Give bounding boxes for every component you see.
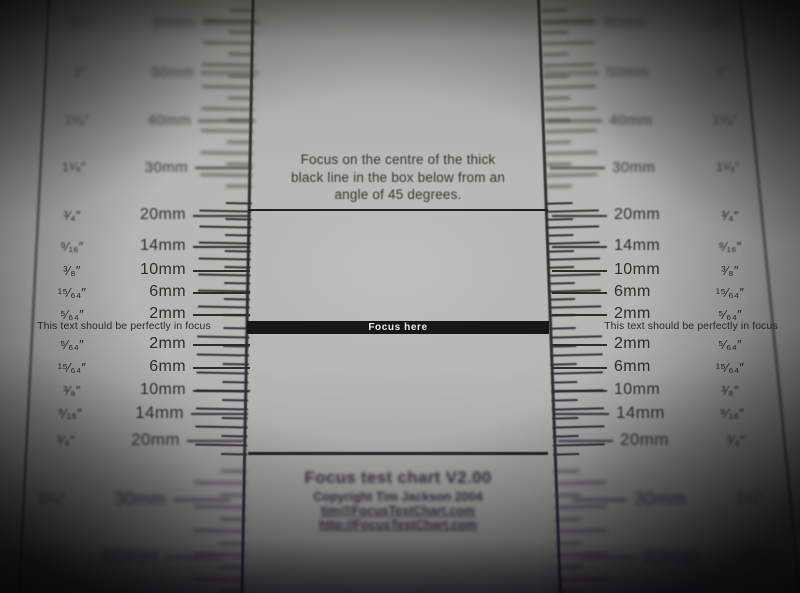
ruler-row-6mm: ¹⁵⁄₆₄″6mm — [30, 356, 250, 378]
ruler-mm-label: 14mm — [112, 403, 184, 423]
focus-test-chart-photo: 2³⁄₈″60mm2″50mm1⁵⁄₈″40mm1¹⁄₈″30mm³⁄₄″20m… — [0, 0, 800, 593]
footer-title: Focus test chart V2.00 — [247, 468, 549, 488]
ruler-row-20mm: ³⁄₄″20mm — [30, 204, 250, 226]
ruler-mm-label: 10mm — [614, 381, 686, 399]
focus-box-bottom-border — [248, 452, 548, 455]
ruler-mm-label: 14mm — [616, 403, 688, 423]
ruler-row-6mm: 6mm¹⁵⁄₆₄″ — [552, 281, 774, 303]
ruler-major-dash — [547, 109, 609, 131]
ruler-inch-label: ³⁄₄″ — [692, 433, 780, 448]
ruler-row-30mm: 1¹⁄₈″30mm — [10, 488, 230, 510]
ruler-inch-label: 1⁵⁄₈″ — [714, 548, 800, 566]
ruler-major-dash — [186, 333, 250, 355]
footer-url: http://FocusTestChart.com — [247, 518, 549, 532]
ruler-mm-label: 10mm — [114, 381, 186, 399]
ruler-major-dash — [544, 61, 606, 83]
ruler-mm-label: 20mm — [108, 430, 180, 450]
ruler-inch-label: 2″ — [678, 65, 766, 79]
ruler-mm-label: 40mm — [119, 112, 191, 129]
ruler-mm-label: 40mm — [86, 546, 158, 569]
ruler-mm-label: 2mm — [114, 335, 186, 353]
footer-copyright: Copyright Tim Jackson 2004 — [247, 490, 549, 504]
ruler-mm-label: 30mm — [116, 159, 188, 176]
ruler-inch-label: 1⁵⁄₈″ — [681, 113, 769, 127]
ruler-row-60mm: 60mm2³⁄₈″ — [542, 11, 764, 33]
ruler-mm-label: 6mm — [614, 283, 686, 301]
ruler-major-dash — [184, 402, 248, 424]
ruler-major-dash — [191, 109, 255, 131]
ruler-inch-label: ⁹⁄₁₆″ — [28, 406, 112, 421]
ruler-inch-label: ³⁄₈″ — [686, 383, 774, 398]
ruler-row-6mm: 6mm¹⁵⁄₆₄″ — [552, 356, 774, 378]
ruler-mm-label: 10mm — [114, 261, 186, 279]
ruler-mm-label: 60mm — [604, 14, 676, 31]
ruler-inch-label: ¹⁵⁄₆₄″ — [686, 360, 774, 375]
ruler-inch-label: 1¹⁄₈″ — [32, 160, 116, 174]
ruler-inch-label: ¹⁵⁄₆₄″ — [30, 285, 114, 300]
ruler-row-10mm: 10mm³⁄₈″ — [552, 259, 774, 281]
ruler-row-20mm: 20mm³⁄₄″ — [558, 429, 780, 451]
ruler-inch-label: 2³⁄₈″ — [676, 15, 764, 29]
ruler-major-dash — [186, 259, 250, 281]
ruler-mm-label: 6mm — [114, 358, 186, 376]
ruler-inch-label: ⁹⁄₁₆″ — [688, 406, 776, 421]
ruler-major-dash — [572, 488, 634, 510]
ruler-mm-label: 10mm — [614, 261, 686, 279]
ruler-mm-label: 30mm — [94, 489, 166, 510]
ruler-row-40mm: 1⁵⁄₈″40mm — [35, 109, 255, 131]
ruler-mm-label: 30mm — [634, 489, 706, 510]
ruler-inch-label: 1⁵⁄₈″ — [35, 113, 119, 127]
ruler-major-dash — [580, 546, 642, 568]
ruler-inch-label: ⁹⁄₁₆″ — [30, 239, 114, 254]
instruction-line-3: angle of 45 degrees. — [247, 186, 549, 204]
ruler-row-20mm: 20mm³⁄₄″ — [552, 204, 774, 226]
ruler-row-10mm: ³⁄₈″10mm — [30, 259, 250, 281]
ruler-row-30mm: 30mm1¹⁄₈″ — [550, 156, 772, 178]
ruler-mm-label: 6mm — [614, 358, 686, 376]
ruler-major-dash — [552, 204, 614, 226]
ruler-major-dash — [180, 429, 244, 451]
ruler-major-dash — [186, 281, 250, 303]
ruler-major-dash — [552, 235, 614, 257]
ruler-mm-label: 14mm — [614, 237, 686, 255]
right-focus-note: This text should be perfectly in focus — [584, 320, 798, 332]
ruler-mm-label: 40mm — [642, 546, 714, 569]
ruler-row-14mm: ⁹⁄₁₆″14mm — [28, 402, 248, 424]
ruler-major-dash — [186, 356, 250, 378]
ruler-inch-label: 1¹⁄₈″ — [706, 491, 794, 507]
instruction-text: Focus on the centre of the thick black l… — [247, 151, 549, 204]
ruler-major-dash — [552, 259, 614, 281]
ruler-inch-label: ³⁄₈″ — [686, 263, 774, 278]
ruler-major-dash — [558, 429, 620, 451]
focus-band: Focus here — [247, 321, 549, 334]
instruction-line-1: Focus on the centre of the thick — [247, 151, 549, 169]
ruler-major-dash — [552, 333, 614, 355]
focus-box-top-border — [248, 209, 548, 211]
ruler-major-dash — [550, 156, 612, 178]
ruler-row-2mm: 2mm⁵⁄₆₄″ — [552, 333, 774, 355]
ruler-inch-label: ⁵⁄₆₄″ — [30, 337, 114, 352]
right-ruler-labels: 60mm2³⁄₈″50mm2″40mm1⁵⁄₈″30mm1¹⁄₈″20mm³⁄₄… — [552, 0, 774, 593]
ruler-inch-label: ³⁄₄″ — [686, 208, 774, 223]
ruler-row-60mm: 2³⁄₈″60mm — [40, 11, 260, 33]
focus-band-label: Focus here — [368, 322, 427, 333]
ruler-row-40mm: 40mm1⁵⁄₈″ — [547, 109, 769, 131]
ruler-row-10mm: ³⁄₈″10mm — [30, 379, 250, 401]
ruler-mm-label: 14mm — [114, 237, 186, 255]
left-focus-note: This text should be perfectly in focus — [24, 320, 224, 332]
ruler-inch-label: ⁵⁄₆₄″ — [686, 337, 774, 352]
ruler-major-dash — [166, 488, 230, 510]
ruler-row-50mm: 2″50mm — [38, 61, 258, 83]
ruler-mm-label: 20mm — [620, 430, 692, 450]
ruler-mm-label: 20mm — [614, 206, 686, 224]
ruler-row-14mm: ⁹⁄₁₆″14mm — [30, 235, 250, 257]
ruler-inch-label: 2³⁄₈″ — [40, 15, 124, 29]
ruler-inch-label: 1¹⁄₈″ — [684, 160, 772, 174]
ruler-inch-label: ¹⁵⁄₆₄″ — [686, 285, 774, 300]
ruler-mm-label: 20mm — [114, 206, 186, 224]
ruler-major-dash — [552, 379, 614, 401]
ruler-major-dash — [552, 356, 614, 378]
ruler-row-30mm: 1¹⁄₈″30mm — [32, 156, 252, 178]
ruler-inch-label: ³⁄₄″ — [24, 433, 108, 448]
ruler-inch-label: ³⁄₈″ — [30, 383, 114, 398]
ruler-row-2mm: ⁵⁄₆₄″2mm — [30, 333, 250, 355]
ruler-inch-label: ³⁄₈″ — [30, 263, 114, 278]
ruler-mm-label: 60mm — [124, 14, 196, 31]
left-ruler-labels: 2³⁄₈″60mm2″50mm1⁵⁄₈″40mm1¹⁄₈″30mm³⁄₄″20m… — [30, 0, 250, 593]
ruler-mm-label: 50mm — [122, 64, 194, 81]
ruler-major-dash — [554, 402, 616, 424]
ruler-major-dash — [186, 235, 250, 257]
ruler-major-dash — [542, 11, 604, 33]
ruler-row-6mm: ¹⁵⁄₆₄″6mm — [30, 281, 250, 303]
ruler-major-dash — [186, 204, 250, 226]
ruler-row-14mm: 14mm⁹⁄₁₆″ — [554, 402, 776, 424]
ruler-inch-label: 1¹⁄₈″ — [10, 491, 94, 507]
ruler-mm-label: 2mm — [614, 335, 686, 353]
ruler-row-14mm: 14mm⁹⁄₁₆″ — [552, 235, 774, 257]
ruler-row-10mm: 10mm³⁄₈″ — [552, 379, 774, 401]
ruler-major-dash — [158, 546, 222, 568]
ruler-inch-label: ³⁄₄″ — [30, 208, 114, 223]
ruler-mm-label: 40mm — [609, 112, 681, 129]
ruler-inch-label: 2″ — [38, 65, 122, 79]
ruler-major-dash — [188, 156, 252, 178]
footer-email: tim@FocusTestChart.com — [247, 504, 549, 518]
ruler-row-30mm: 30mm1¹⁄₈″ — [572, 488, 794, 510]
ruler-inch-label: 1⁵⁄₈″ — [2, 548, 86, 566]
ruler-row-50mm: 50mm2″ — [544, 61, 766, 83]
ruler-row-20mm: ³⁄₄″20mm — [24, 429, 244, 451]
ruler-inch-label: ⁹⁄₁₆″ — [686, 239, 774, 254]
ruler-mm-label: 6mm — [114, 283, 186, 301]
ruler-row-40mm: 1⁵⁄₈″40mm — [2, 546, 222, 568]
instruction-line-2: black line in the box below from an — [247, 169, 549, 187]
ruler-mm-label: 50mm — [606, 64, 678, 81]
ruler-mm-label: 30mm — [612, 159, 684, 176]
center-column: Focus on the centre of the thick black l… — [247, 0, 549, 593]
ruler-row-40mm: 40mm1⁵⁄₈″ — [580, 546, 800, 568]
ruler-inch-label: ¹⁵⁄₆₄″ — [30, 360, 114, 375]
footer-credits: Focus test chart V2.00 Copyright Tim Jac… — [247, 468, 549, 532]
ruler-major-dash — [552, 281, 614, 303]
ruler-major-dash — [186, 379, 250, 401]
